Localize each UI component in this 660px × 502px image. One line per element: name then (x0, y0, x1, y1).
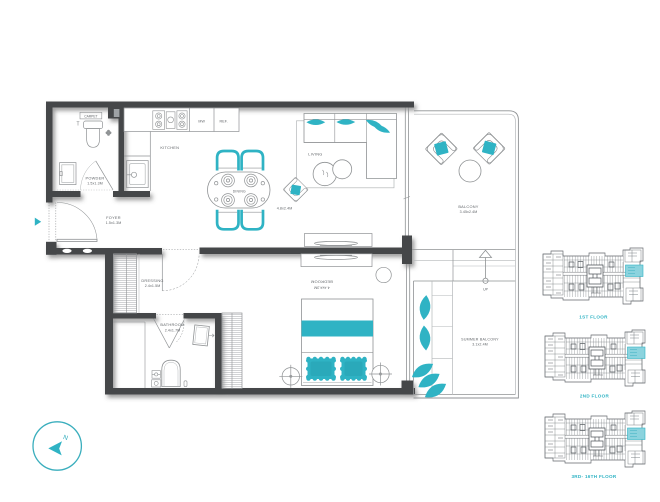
svg-text:POWDER: POWDER (85, 176, 104, 181)
svg-text:1ST FLOOR: 1ST FLOOR (579, 315, 608, 320)
svg-text:DINING: DINING (233, 190, 246, 194)
svg-text:CARPET: CARPET (84, 114, 97, 118)
svg-text:BALCONY: BALCONY (458, 204, 478, 209)
svg-text:2.4x1.5M: 2.4x1.5M (145, 284, 161, 288)
svg-text:FOYER: FOYER (106, 215, 121, 220)
svg-text:KITCHEN: KITCHEN (160, 145, 179, 150)
svg-text:LIVING: LIVING (308, 152, 322, 157)
svg-text:UP: UP (483, 288, 488, 292)
svg-text:BATHROOM: BATHROOM (160, 322, 184, 327)
svg-text:3.45x2.4M: 3.45x2.4M (460, 210, 478, 214)
svg-text:4.8x2.4M: 4.8x2.4M (277, 207, 293, 211)
svg-text:SUMMER BALCONY: SUMMER BALCONY (461, 337, 499, 341)
svg-text:MW: MW (198, 120, 205, 124)
svg-text:3.1x2.4M: 3.1x2.4M (472, 343, 488, 347)
svg-text:2ND FLOOR: 2ND FLOOR (580, 393, 610, 398)
svg-text:1.5x1.3M: 1.5x1.3M (87, 182, 103, 186)
svg-text:4.4x4.3M: 4.4x4.3M (314, 286, 330, 290)
svg-text:1.5x1.3M: 1.5x1.3M (106, 221, 122, 225)
svg-text:N: N (62, 434, 69, 442)
svg-text:BEDROOM: BEDROOM (311, 279, 333, 284)
svg-text:DRESSING: DRESSING (141, 278, 163, 283)
svg-text:3RD- 16TH FLOOR: 3RD- 16TH FLOOR (571, 474, 616, 479)
svg-text:REF.: REF. (220, 120, 228, 124)
svg-text:2.4x1.7M: 2.4x1.7M (165, 328, 181, 332)
